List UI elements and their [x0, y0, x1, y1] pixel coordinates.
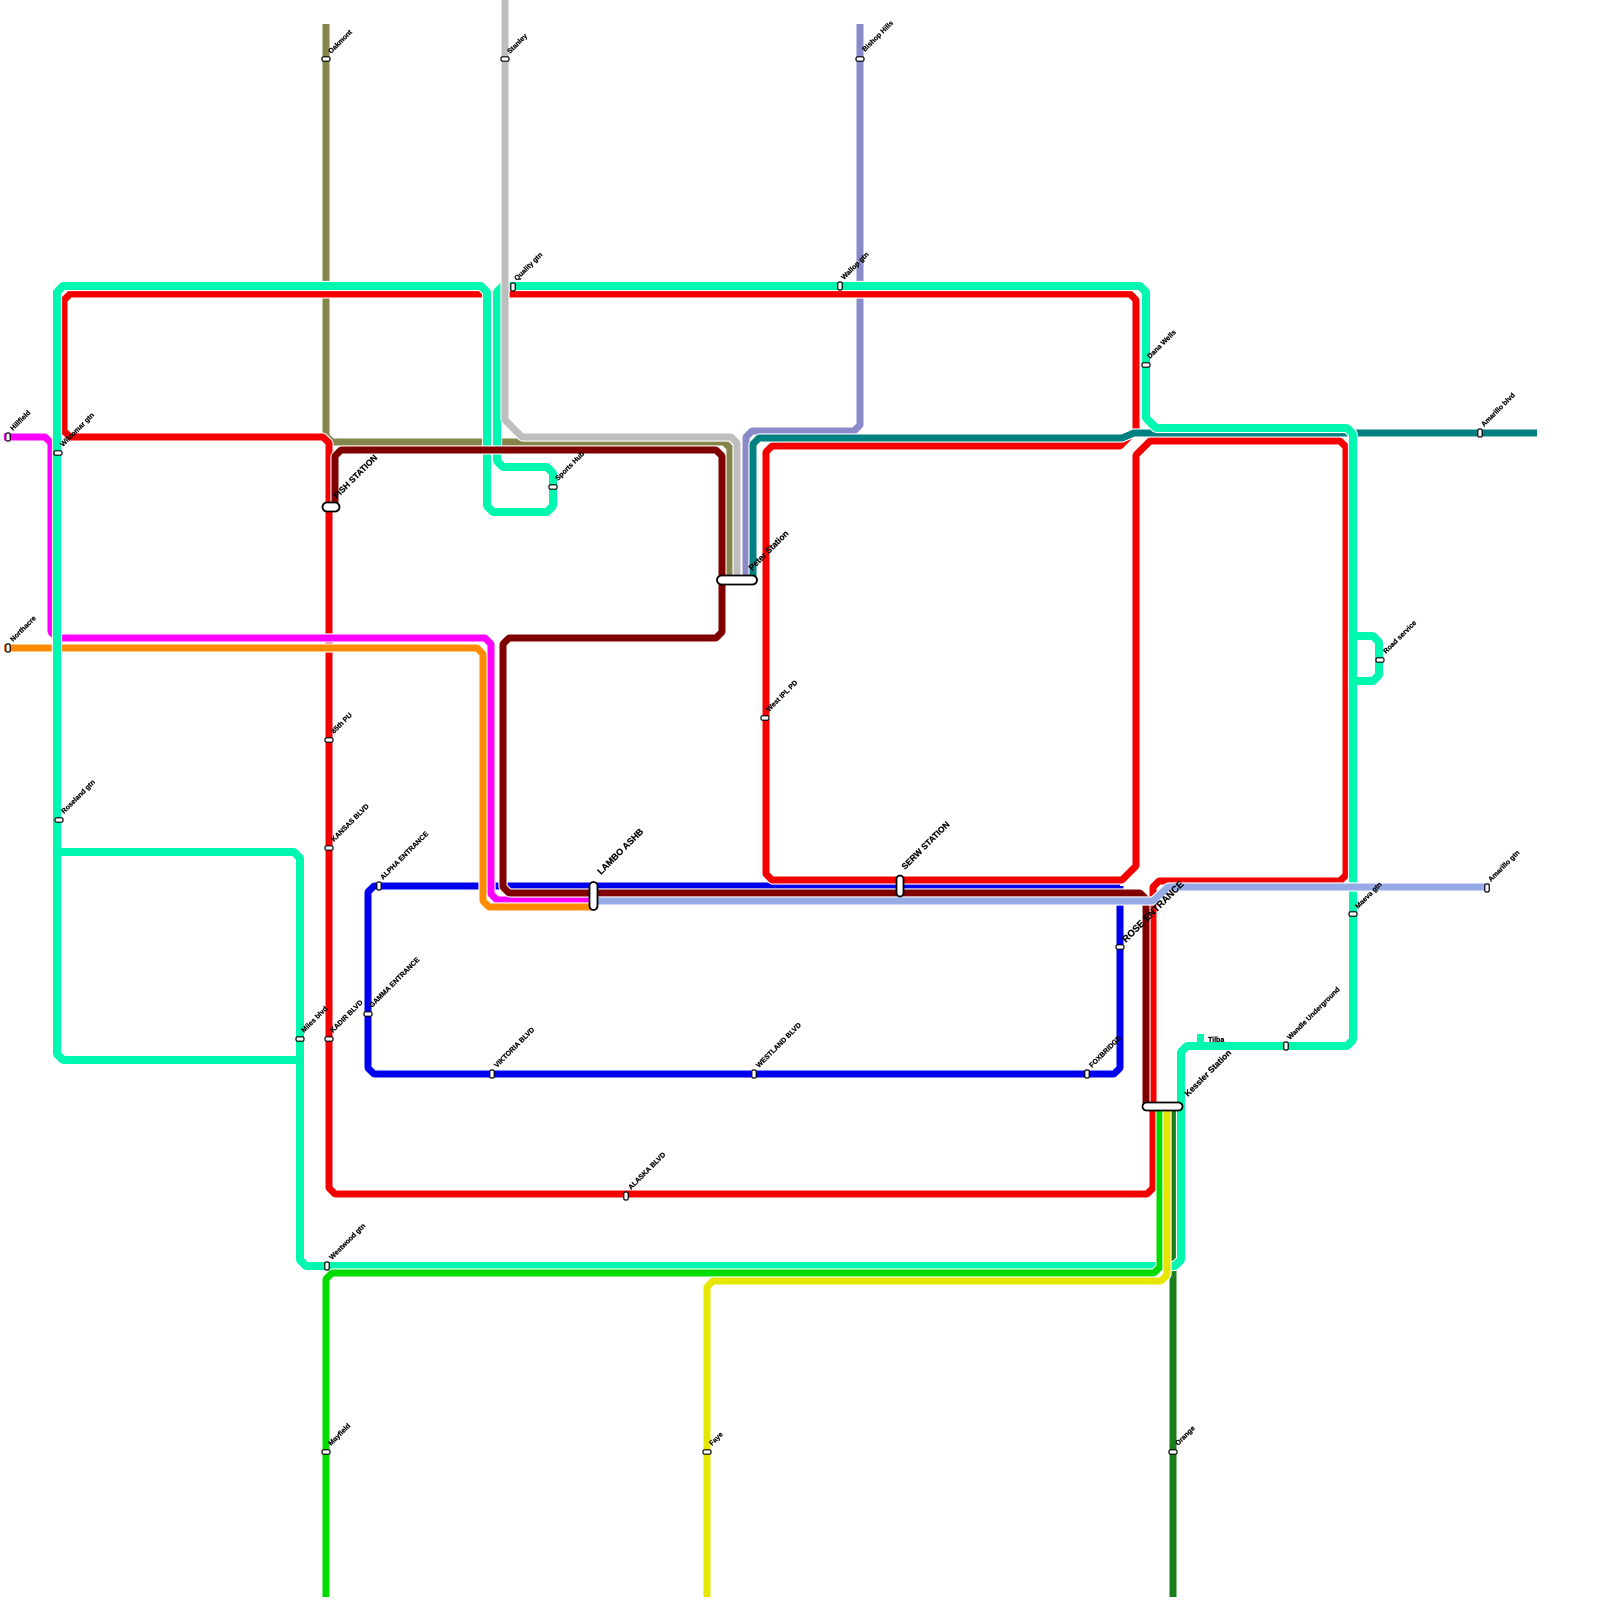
svg-text:Tilba: Tilba — [1208, 1037, 1224, 1044]
